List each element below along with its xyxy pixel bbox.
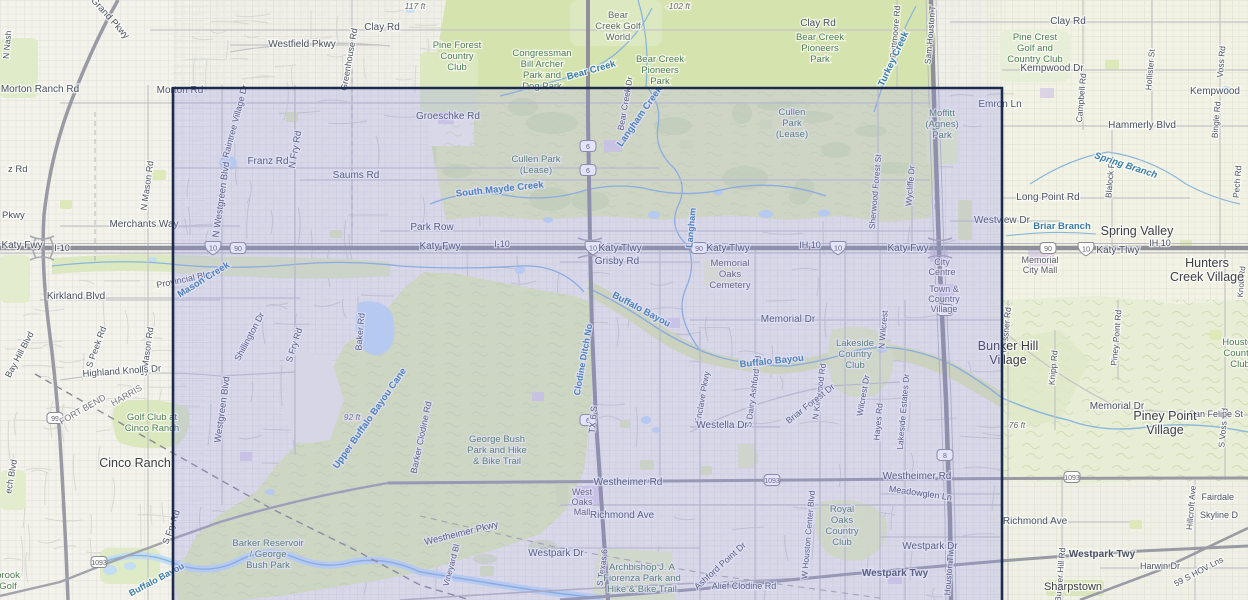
svg-text:Golf: Golf (0, 581, 17, 592)
svg-text:Long Point Rd: Long Point Rd (1016, 192, 1079, 203)
svg-text:90: 90 (1044, 246, 1052, 253)
svg-text:Westpark Twy: Westpark Twy (1069, 549, 1136, 560)
svg-text:10: 10 (1082, 245, 1090, 254)
svg-text:Village: Village (1146, 423, 1183, 437)
svg-text:Houston: Houston (1222, 337, 1248, 348)
svg-text:Kempwood: Kempwood (1190, 86, 1240, 97)
svg-text:Westfield Pkwy: Westfield Pkwy (268, 39, 336, 50)
svg-text:Morton Ranch Rd: Morton Ranch Rd (1, 84, 79, 95)
svg-text:117 ft: 117 ft (405, 1, 426, 11)
svg-text:Park: Park (810, 54, 830, 65)
svg-text:I-10: I-10 (54, 243, 70, 253)
svg-text:Pioneers: Pioneers (801, 43, 839, 54)
svg-text:1093: 1093 (1064, 475, 1080, 482)
svg-text:Hammerly Blvd: Hammerly Blvd (1108, 120, 1176, 131)
svg-text:Creek Village: Creek Village (1170, 270, 1244, 284)
svg-text:Cinco Ranch: Cinco Ranch (125, 423, 179, 434)
svg-text:Bear Creek: Bear Creek (636, 54, 684, 65)
svg-text:San Felipe St: San Felipe St (1189, 409, 1244, 419)
svg-text:z Rd: z Rd (8, 164, 28, 175)
svg-text:Richmond Ave: Richmond Ave (1003, 516, 1068, 527)
svg-text:Bear Creek: Bear Creek (796, 32, 844, 43)
svg-text:Creek Golf: Creek Golf (595, 21, 641, 32)
svg-text:Kirkland Blvd: Kirkland Blvd (47, 291, 105, 302)
svg-text:Congressman: Congressman (512, 48, 571, 59)
svg-text:Country: Country (1223, 348, 1248, 359)
svg-text:Cinco Ranch: Cinco Ranch (99, 456, 171, 470)
svg-text:Park: Park (650, 76, 670, 87)
svg-text:Park and: Park and (523, 70, 561, 81)
svg-text:IH 10: IH 10 (1149, 238, 1171, 248)
svg-text:Briar Branch: Briar Branch (1033, 221, 1091, 232)
svg-text:Fairdale: Fairdale (1201, 492, 1234, 502)
svg-text:Clay Rd: Clay Rd (1050, 16, 1086, 27)
svg-text:Pine Forest: Pine Forest (433, 40, 482, 51)
svg-text:76 ft: 76 ft (1009, 420, 1026, 430)
svg-text:Pioneers: Pioneers (641, 65, 679, 76)
svg-text:Harwin Dr: Harwin Dr (1140, 561, 1180, 571)
svg-text:Skyline D: Skyline D (1200, 510, 1239, 520)
svg-text:City Mall: City Mall (1023, 265, 1058, 275)
svg-text:-102 ft: -102 ft (666, 1, 691, 11)
svg-text:Merchants Way: Merchants Way (109, 219, 178, 230)
svg-text:Hunters: Hunters (1185, 256, 1229, 270)
svg-text:Clay Rd: Clay Rd (800, 18, 836, 29)
svg-text:Golf and: Golf and (1017, 43, 1053, 54)
svg-text:Sharpstown: Sharpstown (1044, 581, 1102, 593)
svg-text:Katy Tlwy: Katy Tlwy (1096, 245, 1139, 256)
svg-text:Club: Club (1230, 359, 1248, 370)
svg-text:Clay Rd: Clay Rd (364, 22, 400, 33)
svg-text:World: World (606, 32, 631, 43)
svg-text:Club: Club (447, 62, 467, 73)
svg-text:brook: brook (0, 570, 20, 581)
svg-text:Country Club: Country Club (1007, 54, 1062, 65)
svg-text:Spring Valley: Spring Valley (1101, 224, 1174, 238)
svg-text:Pkwy: Pkwy (2, 210, 25, 221)
svg-text:1093: 1093 (91, 560, 107, 567)
svg-text:Katy Fwy: Katy Fwy (1, 240, 42, 251)
svg-text:Piney Point: Piney Point (1133, 409, 1197, 423)
svg-text:Country: Country (440, 51, 474, 62)
svg-text:Memorial: Memorial (1021, 255, 1058, 265)
svg-text:Pine Crest: Pine Crest (1013, 32, 1058, 43)
svg-text:Bill Archer: Bill Archer (521, 59, 564, 70)
svg-text:Bear: Bear (608, 10, 628, 21)
svg-text:Golf Club at: Golf Club at (127, 412, 178, 423)
